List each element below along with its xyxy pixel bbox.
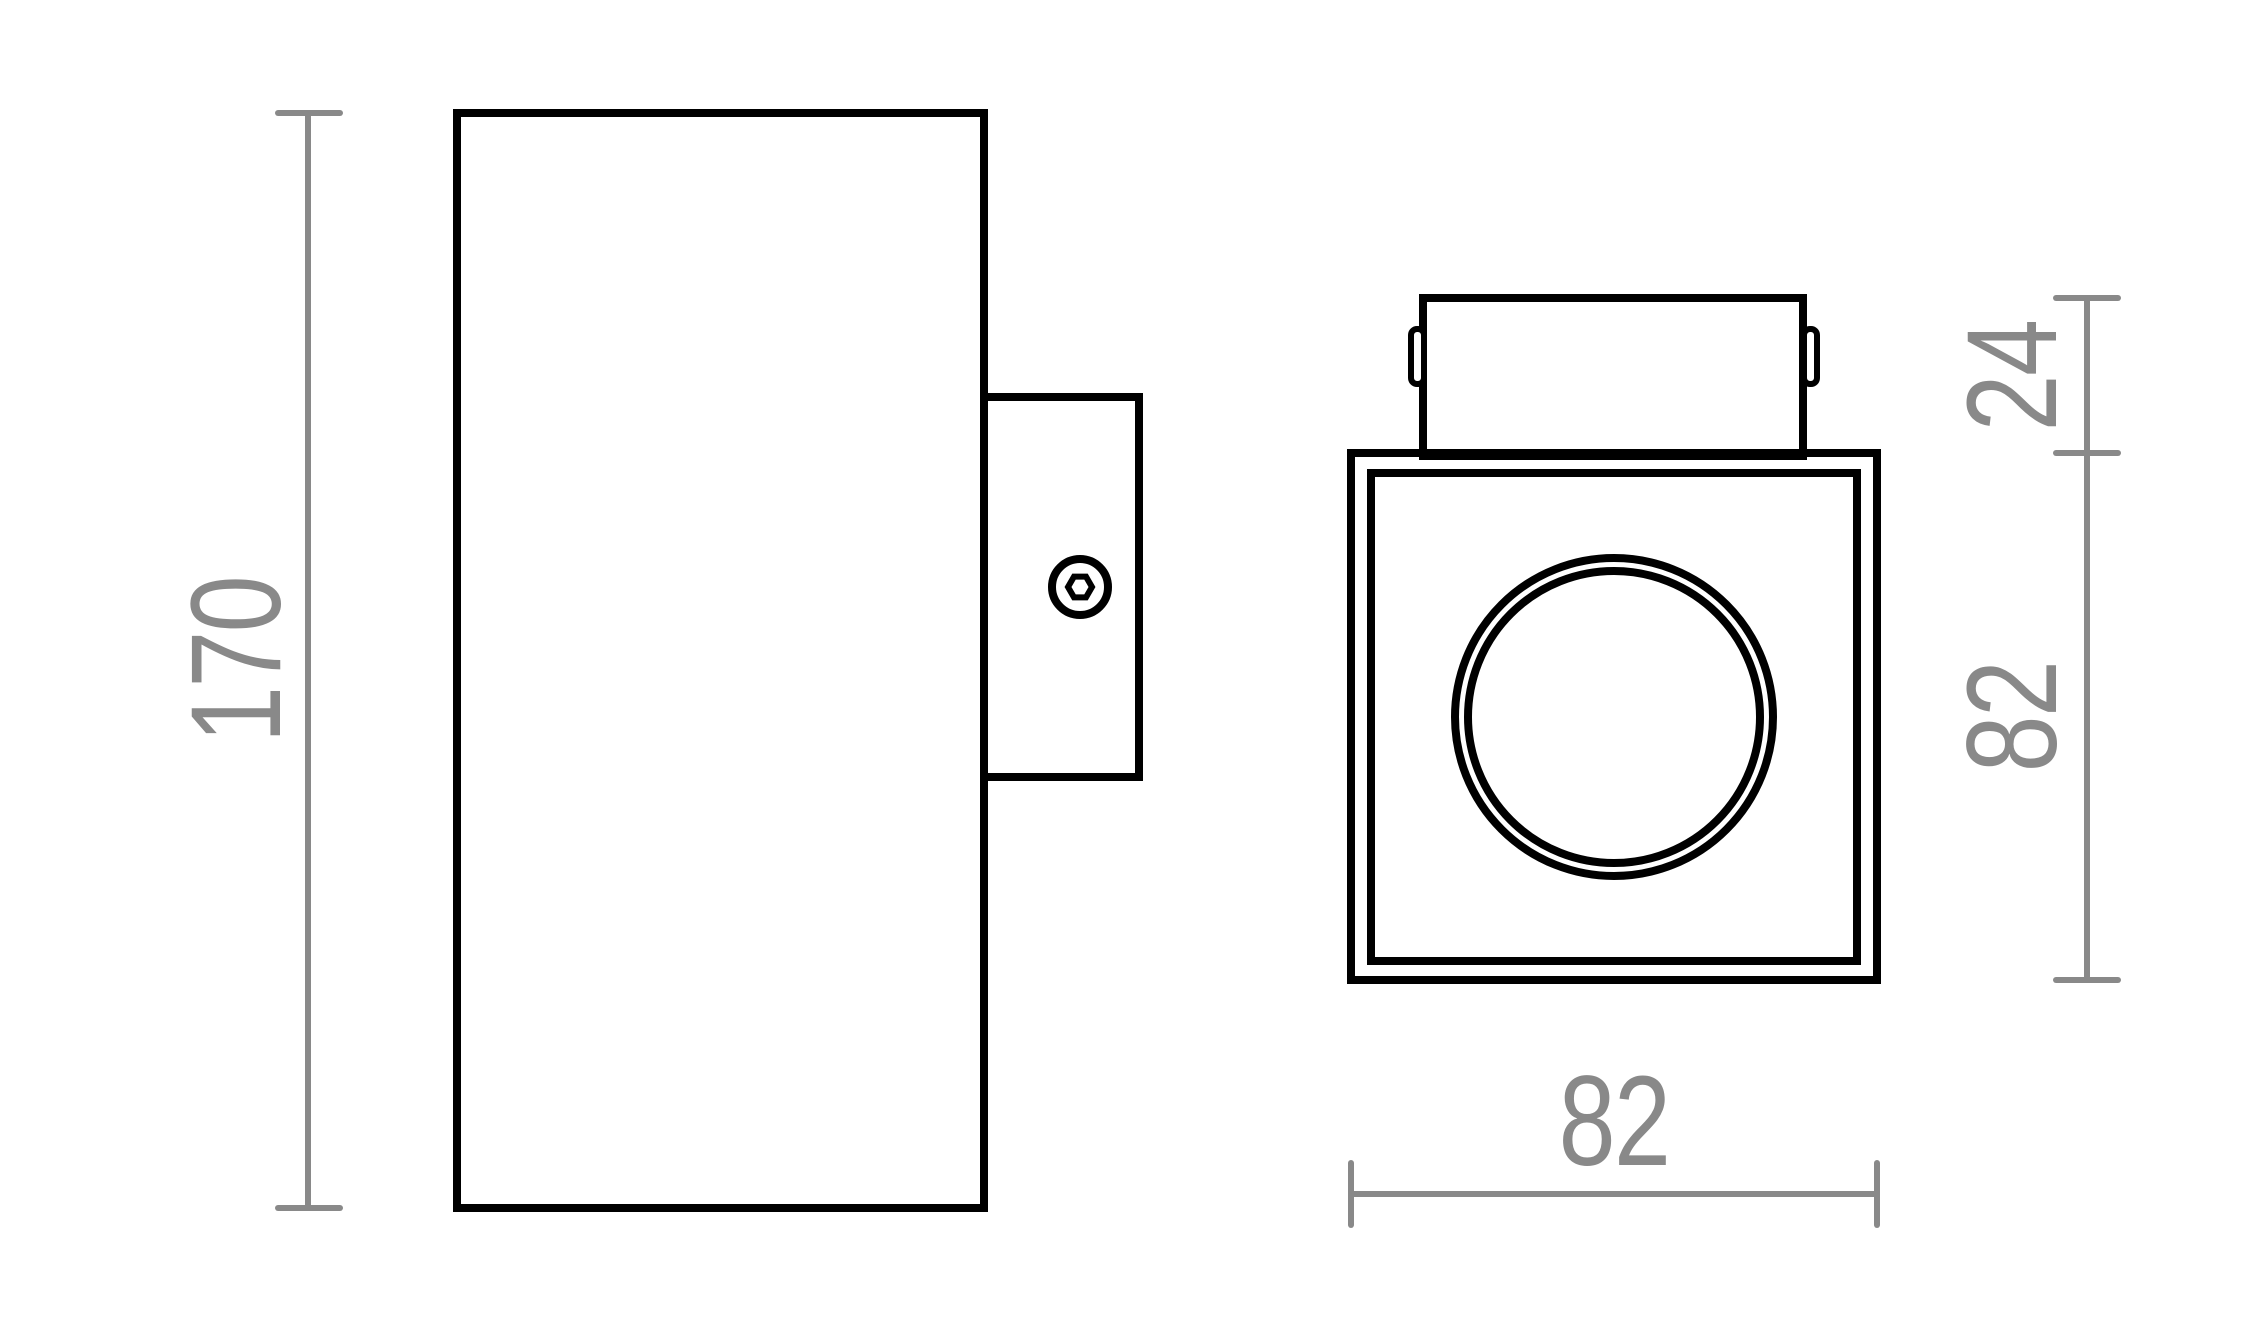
right-dimension: 24 82 <box>1940 298 2118 980</box>
mounting-bracket-front-outline <box>1423 298 1803 456</box>
lamp-opening-outer <box>1455 558 1773 876</box>
lamp-opening-inner <box>1468 571 1760 863</box>
hex-socket-icon <box>1068 577 1092 598</box>
height-dimension-label: 170 <box>164 577 308 743</box>
screw-head-icon <box>1052 559 1108 615</box>
height-dimension: 170 <box>164 113 340 1208</box>
bracket-tab-right <box>1804 329 1817 384</box>
drawing-canvas: 170 24 82 <box>0 0 2268 1323</box>
technical-drawing: 170 24 82 <box>0 0 2268 1323</box>
mounting-bracket-outline <box>984 397 1139 777</box>
face-width-label: 82 <box>1559 1049 1670 1193</box>
fixture-body-outline <box>457 113 984 1208</box>
front-view <box>1351 298 1877 980</box>
front-face-inner-outline <box>1371 473 1857 961</box>
bottom-dimension: 82 <box>1351 1049 1877 1225</box>
front-face-outer-outline <box>1351 453 1877 980</box>
bracket-tab-left <box>1411 329 1424 384</box>
face-height-label: 82 <box>1940 662 2084 773</box>
bracket-depth-label: 24 <box>1940 321 2084 432</box>
side-view <box>457 113 1139 1208</box>
